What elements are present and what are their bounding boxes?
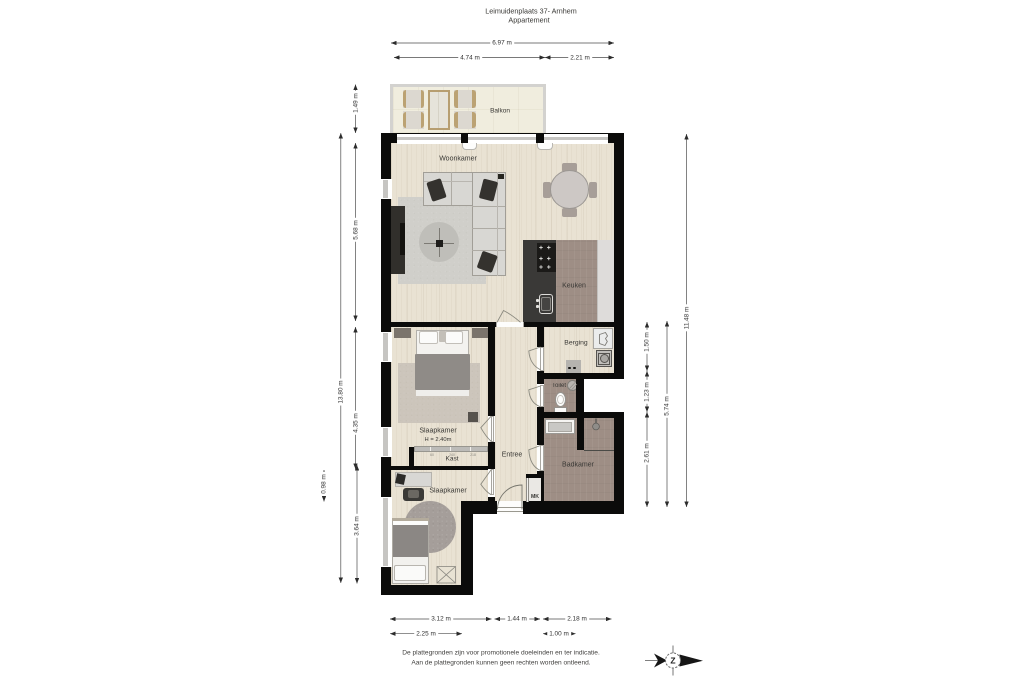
svg-text:Z: Z bbox=[670, 656, 675, 666]
